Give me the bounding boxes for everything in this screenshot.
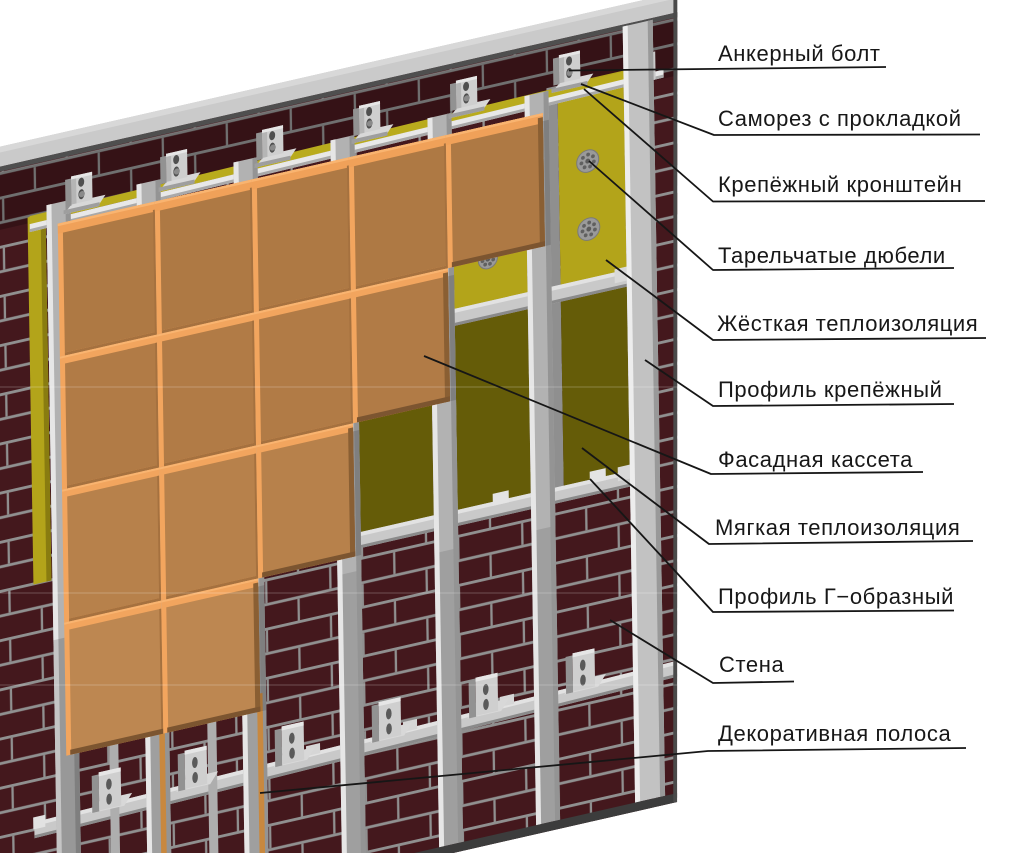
svg-text:Саморез с прокладкой: Саморез с прокладкой bbox=[718, 106, 962, 131]
svg-text:Крепёжный кронштейн: Крепёжный кронштейн bbox=[718, 172, 962, 197]
svg-text:Стена: Стена bbox=[719, 652, 785, 677]
svg-text:Декоративная полоса: Декоративная полоса bbox=[718, 721, 951, 746]
svg-text:Профиль Г−образный: Профиль Г−образный bbox=[718, 584, 954, 609]
svg-text:Профиль крепёжный: Профиль крепёжный bbox=[718, 377, 943, 402]
svg-text:Фасадная кассета: Фасадная кассета bbox=[718, 447, 913, 472]
svg-text:Тарельчатые дюбели: Тарельчатые дюбели bbox=[718, 243, 946, 268]
svg-text:Мягкая теплоизоляция: Мягкая теплоизоляция bbox=[715, 515, 960, 540]
svg-text:Анкерный болт: Анкерный болт bbox=[718, 41, 881, 66]
svg-text:Жёсткая теплоизоляция: Жёсткая теплоизоляция bbox=[717, 311, 978, 336]
